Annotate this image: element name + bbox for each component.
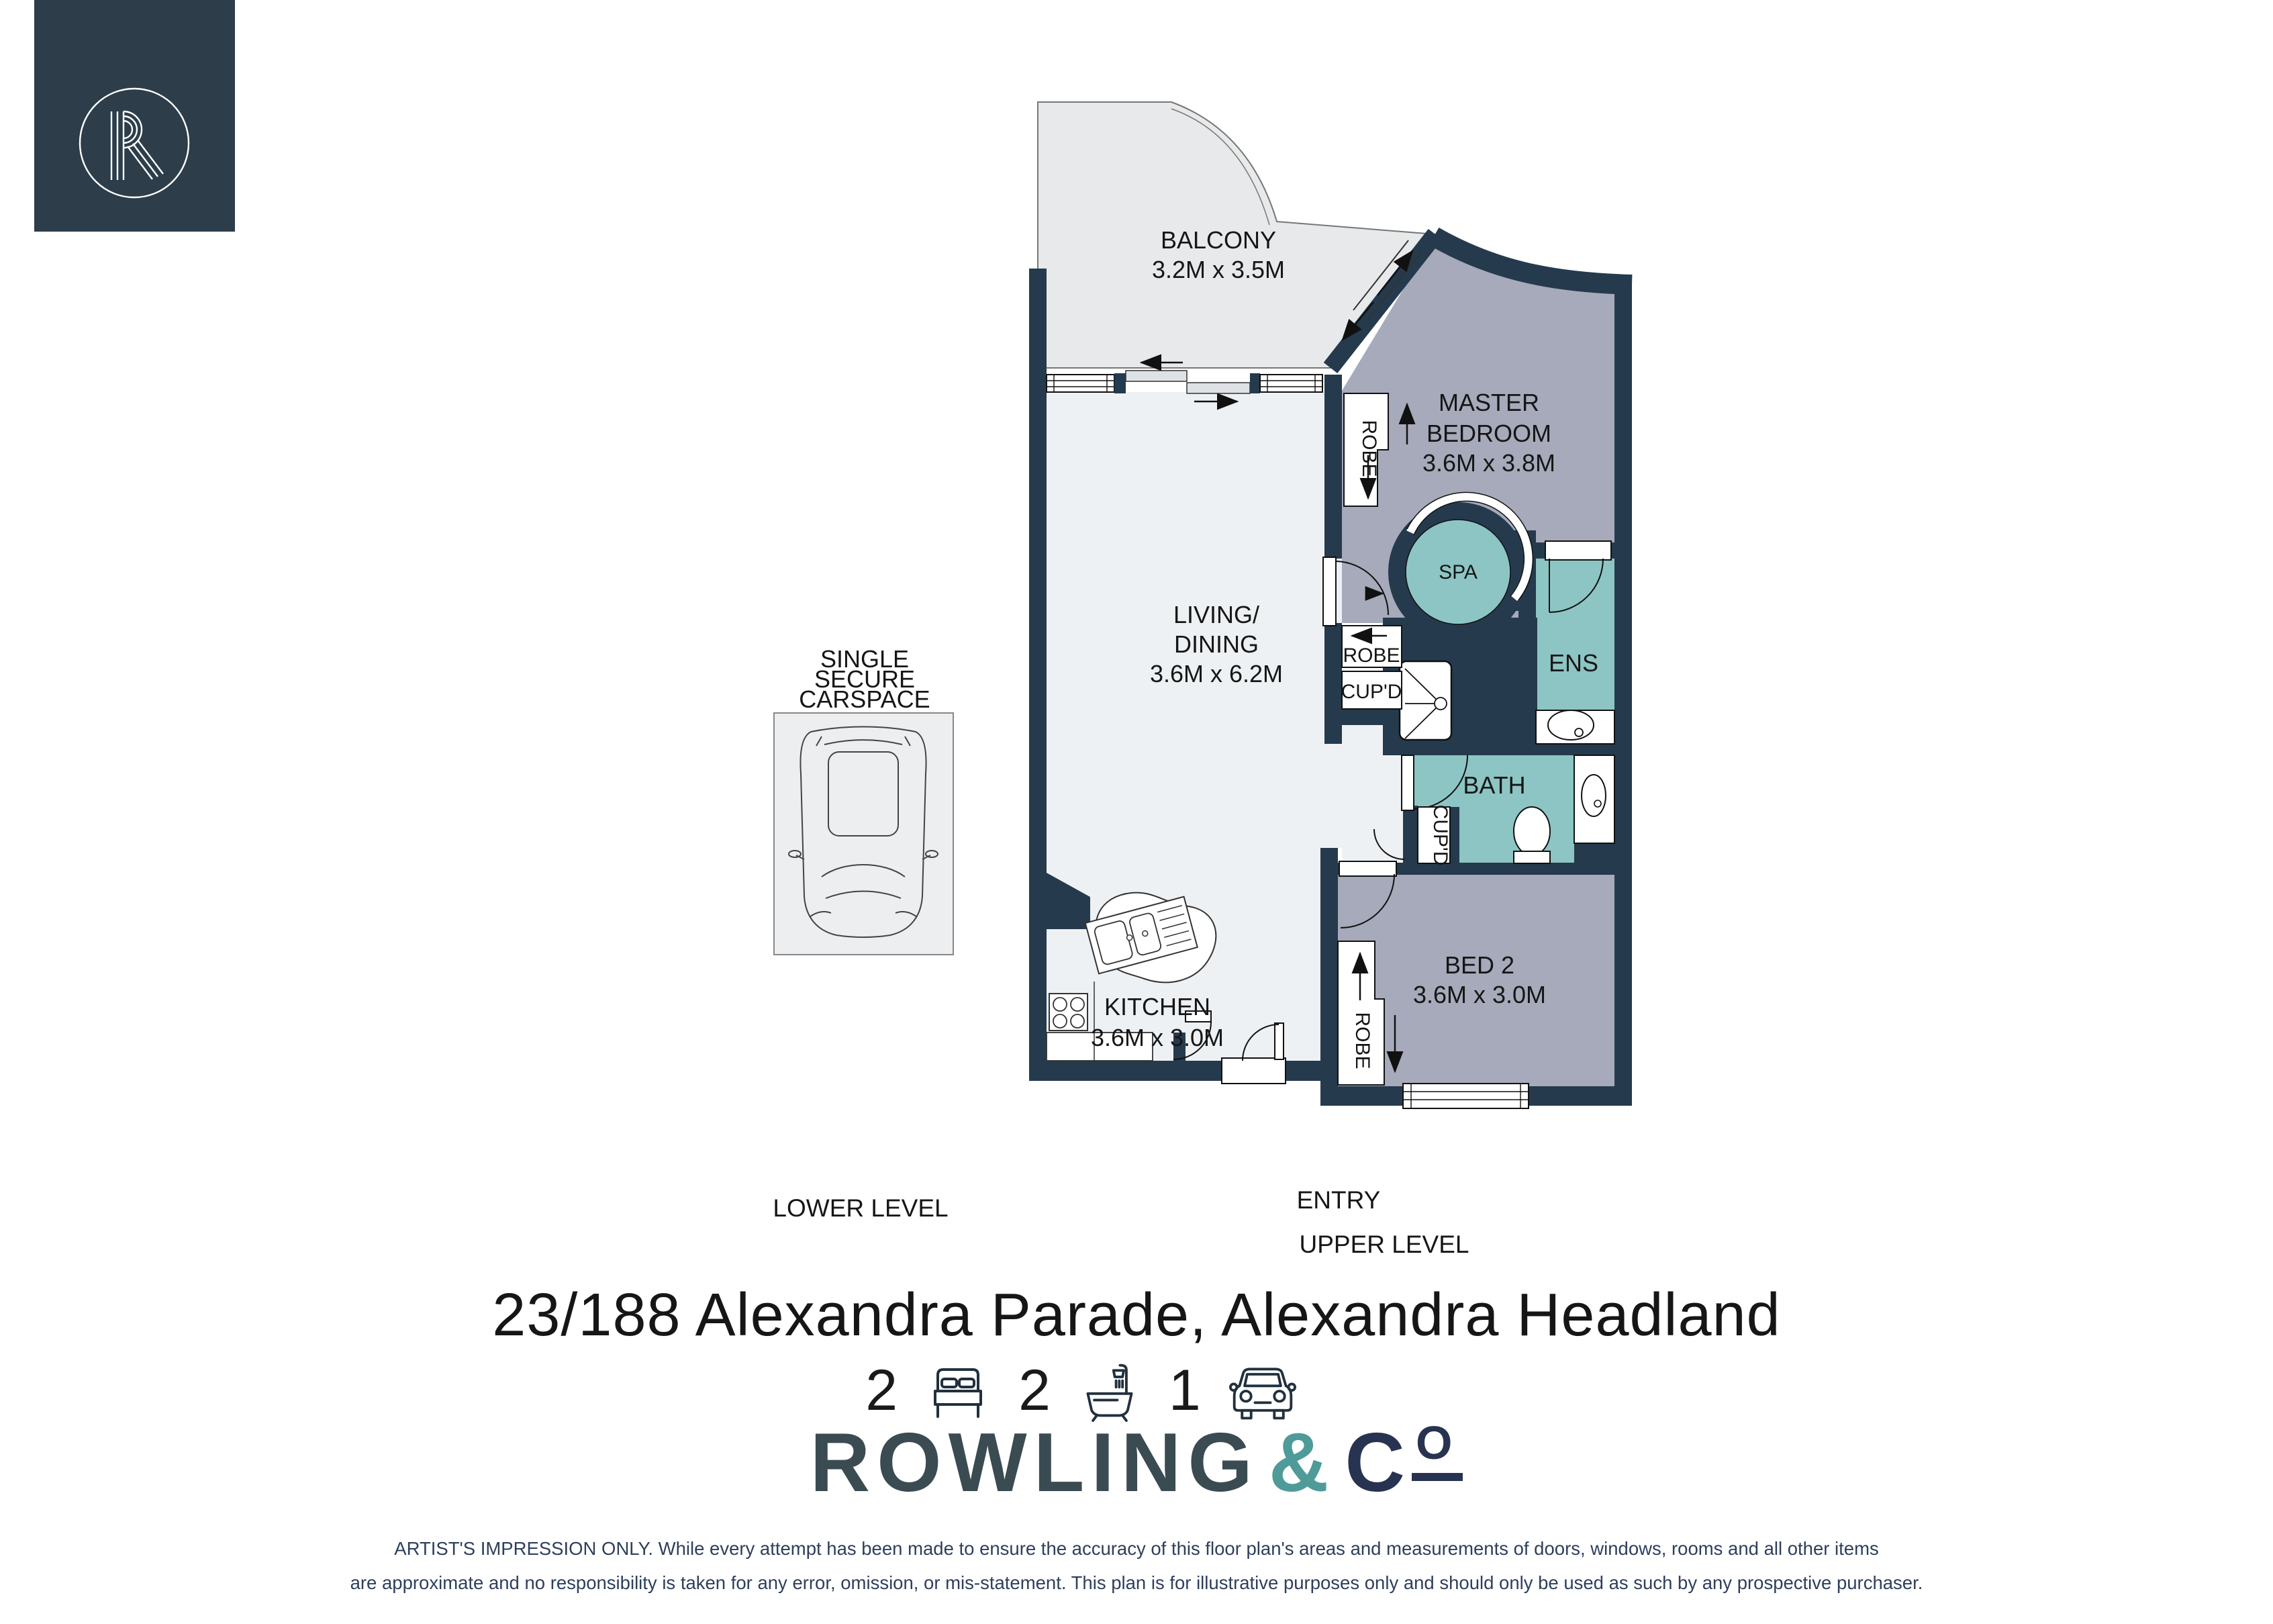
balcony-label: BALCONY [1161,226,1276,254]
kitchen-dims: 3.6M x 3.0M [1091,1024,1224,1051]
bed-icon [926,1362,990,1421]
baths-count: 2 [1018,1357,1051,1424]
brand-logo-box [34,0,235,232]
bath-icon [1079,1360,1141,1422]
brand-c: C [1345,1417,1412,1509]
cupd-bath-label: CUP'D [1429,805,1451,866]
entry-label: ENTRY [1297,1186,1381,1214]
master-label-2: BEDROOM [1426,420,1551,447]
closet-robe-hall: ROBE [1342,626,1402,667]
lower-level-label: LOWER LEVEL [773,1194,948,1222]
cars-count: 1 [1169,1357,1201,1424]
hall-opening [1320,744,1342,848]
robe-bed2-label: ROBE [1351,1012,1373,1069]
room-balcony: BALCONY 3.2M x 3.5M [1038,102,1435,368]
shower-fixture [1400,661,1451,740]
master-dims: 3.6M x 3.8M [1422,449,1555,477]
car-icon [1229,1362,1296,1421]
cupd-hall-label: CUP'D [1341,681,1402,703]
disclaimer-line-2: are approximate and no responsibility is… [0,1566,2273,1601]
master-label-1: MASTER [1439,389,1539,416]
disclaimer-text: ARTIST'S IMPRESSION ONLY. While every at… [0,1532,2273,1601]
living-label-2: DINING [1174,630,1259,658]
floor-plan-page: BALCONY 3.2M x 3.5M LIVING/ DINING 3.6M … [0,0,2273,1624]
brand-o: O [1412,1419,1463,1481]
bed2-label: BED 2 [1445,951,1514,979]
spa-label: SPA [1439,561,1478,583]
bath-vanity [1574,755,1614,843]
robe-hall-label: ROBE [1343,644,1400,667]
living-label-1: LIVING/ [1173,601,1259,628]
toilet-fixture [1514,807,1550,863]
balcony-dims: 3.2M x 3.5M [1152,256,1285,283]
kitchen-cooktop [1049,994,1087,1031]
property-stats: 2 2 1 [0,1357,2162,1424]
upper-level-label: UPPER LEVEL [1300,1231,1469,1258]
brand-wordmark: ROWLING&CO [0,1415,2273,1513]
ens-label: ENS [1549,649,1598,677]
carspace: SINGLE SECURE CARSPACE LOWER LEVEL [773,645,953,1222]
carspace-label-3: CARSPACE [799,685,930,713]
living-dims: 3.6M x 6.2M [1150,660,1283,687]
window-bed2 [1403,1084,1529,1108]
bath-label: BATH [1463,771,1525,799]
robe-master-label: ROBE [1358,420,1380,477]
brand-primary: ROWLING [810,1417,1259,1509]
ens-vanity [1536,710,1614,744]
disclaimer-line-1: ARTIST'S IMPRESSION ONLY. While every at… [0,1532,2273,1566]
brand-ampersand: & [1259,1417,1345,1509]
bed2-dims: 3.6M x 3.0M [1413,981,1546,1008]
property-address: 23/188 Alexandra Parade, Alexandra Headl… [0,1281,2273,1350]
closet-cupd-hall: CUP'D [1341,671,1402,709]
beds-count: 2 [865,1357,898,1424]
kitchen-label: KITCHEN [1104,993,1210,1020]
